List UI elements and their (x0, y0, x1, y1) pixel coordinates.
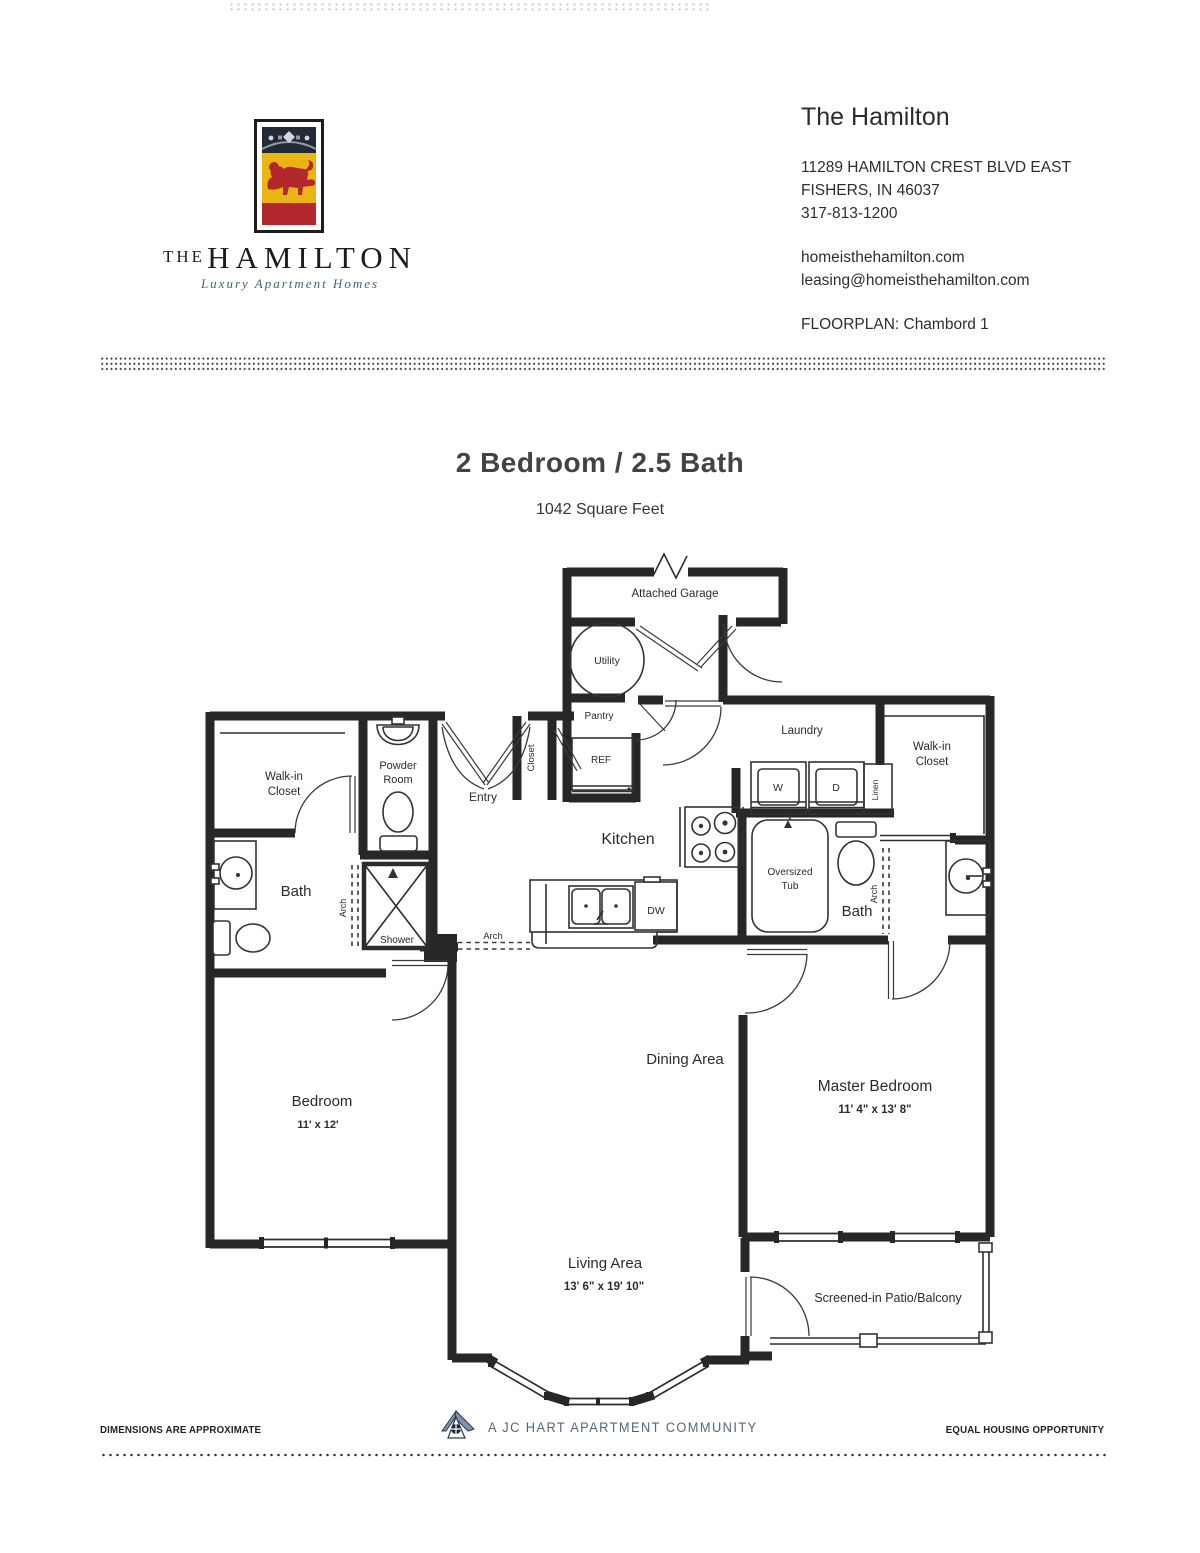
label-washer: W (773, 782, 783, 794)
label-walkin-right-1: Walk-in (913, 741, 951, 753)
crest-top-band (262, 127, 316, 153)
floorplan-drawing: Attached Garage Utility Pantry REF Close… (180, 550, 1020, 1430)
jchart-community-text: A JC HART APARTMENT COMMUNITY (488, 1420, 758, 1439)
label-master-bedroom: Master Bedroom (818, 1078, 933, 1095)
label-living: Living Area (568, 1255, 643, 1272)
doors (295, 624, 956, 1336)
bay-window-right (646, 1359, 709, 1400)
label-arch-kitchen: Arch (483, 931, 503, 942)
bedroom-window (259, 1237, 395, 1249)
label-walkin-right-2: Closet (916, 756, 949, 768)
bath-right-vanity (946, 841, 991, 915)
walkin-right-inner (883, 716, 984, 834)
kitchen-sink (569, 886, 633, 928)
brand-hamilton: HAMILTON (207, 240, 417, 275)
crest-lion-panel (262, 153, 316, 203)
walkin-left-door (295, 776, 355, 833)
master-window-2 (890, 1231, 960, 1243)
website-url: homeisthehamilton.com (801, 246, 1161, 269)
square-footage: 1042 Square Feet (0, 501, 1200, 519)
floorplan-flyer-page: THEHAMILTON Luxury Apartment Homes The H… (0, 0, 1200, 1553)
property-name: The Hamilton (801, 103, 1161, 132)
label-tub-1: Oversized (767, 867, 812, 878)
kitchen-hall-door (663, 701, 721, 765)
label-bath-right: Bath (842, 903, 873, 920)
label-pantry: Pantry (585, 711, 614, 722)
floorplan-name: FLOORPLAN: Chambord 1 (801, 313, 1161, 336)
master-dining-door (745, 950, 807, 1014)
powder-toilet (380, 792, 417, 851)
jchart-house-icon (440, 1405, 476, 1439)
page-title: 2 Bedroom / 2.5 Bath (0, 447, 1200, 479)
email-address: leasing@homeisthehamilton.com (801, 269, 1161, 292)
label-bedroom: Bedroom (292, 1093, 353, 1110)
brand-the: THE (163, 247, 205, 266)
powder-sink (377, 717, 419, 745)
bedroom-door (392, 961, 448, 1021)
label-walkin-left-1: Walk-in (265, 771, 303, 783)
patio-door (746, 1277, 809, 1336)
brand-wordmark: THEHAMILTON (130, 240, 450, 276)
label-dining: Dining Area (646, 1051, 724, 1068)
bath-right-toilet (836, 822, 876, 885)
label-powder-2: Room (383, 774, 412, 786)
label-garage: Attached Garage (632, 588, 719, 600)
label-kitchen: Kitchen (601, 831, 654, 848)
master-window-1 (774, 1231, 843, 1243)
label-entry-closet: Closet (526, 744, 537, 771)
master-hall-door (889, 941, 951, 999)
label-walkin-left-2: Closet (268, 786, 301, 798)
contact-block: The Hamilton 11289 HAMILTON CREST BLVD E… (801, 103, 1161, 336)
walkin-right-pocket-door (880, 833, 956, 843)
phone-number: 317-813-1200 (801, 202, 1161, 225)
hamilton-crest-logo (254, 119, 324, 233)
label-tub-2: Tub (782, 881, 799, 892)
arch-kitchen-dashes (458, 943, 530, 950)
bay-window-left (488, 1359, 551, 1400)
jchart-branding: A JC HART APARTMENT COMMUNITY (440, 1405, 772, 1439)
dimensions-disclaimer: DIMENSIONS ARE APPROXIMATE (100, 1424, 261, 1436)
label-dw: DW (647, 905, 665, 917)
walls (210, 568, 990, 1402)
label-dryer: D (832, 782, 840, 794)
label-patio: Screened-in Patio/Balcony (814, 1291, 962, 1305)
label-living-dims: 13' 6" x 19' 10" (564, 1281, 644, 1293)
arch-right-dashes (883, 848, 889, 934)
brand-tagline: Luxury Apartment Homes (130, 276, 450, 292)
footer-dotted-line (100, 1452, 1110, 1458)
crest-bottom-band (262, 203, 316, 225)
label-ref: REF (591, 755, 611, 766)
address-line-2: FISHERS, IN 46037 (801, 179, 1161, 202)
dishwasher (635, 877, 677, 930)
label-arch-right: Arch (869, 885, 879, 904)
scan-artifact (228, 2, 713, 11)
bath-left-toilet (213, 921, 270, 955)
label-linen: Linen (870, 779, 880, 800)
label-utility: Utility (594, 655, 620, 667)
address-line-1: 11289 HAMILTON CREST BLVD EAST (801, 156, 1161, 179)
bath-left-vanity (211, 841, 256, 909)
label-laundry: Laundry (781, 725, 823, 737)
label-bedroom-dims: 11' x 12' (297, 1119, 339, 1131)
equal-housing-text: EQUAL HOUSING OPPORTUNITY (946, 1424, 1104, 1436)
dotted-divider (100, 356, 1107, 371)
stove (680, 807, 743, 867)
label-arch-left: Arch (338, 899, 348, 918)
label-entry: Entry (469, 790, 497, 804)
arch-left-dashes (352, 865, 358, 949)
garage-door-break (653, 554, 687, 578)
label-powder-1: Powder (379, 760, 417, 772)
label-bath-left: Bath (281, 883, 312, 900)
label-master-dims: 11' 4" x 13' 8" (838, 1104, 911, 1116)
label-shower: Shower (380, 935, 415, 946)
